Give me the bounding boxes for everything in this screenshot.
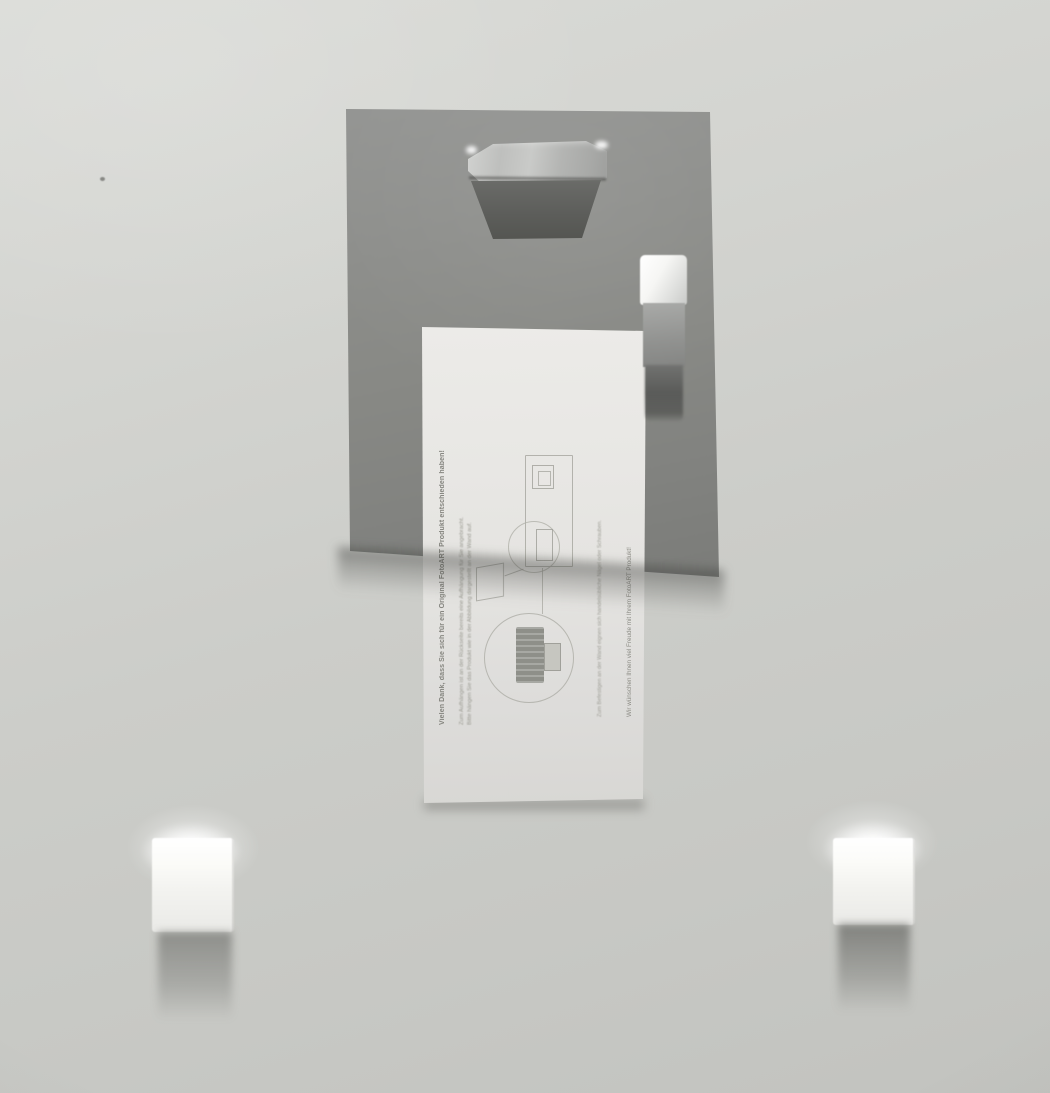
wall-speck [100,177,105,181]
hanger-glint-left [466,146,477,154]
foam-block-right-shadow [838,924,910,1012]
foam-block-left-face [152,838,234,932]
hanger-glint-right [595,141,608,149]
metal-clip [639,253,689,423]
foam-block-right-face [833,838,915,925]
diagram-hanger-icon-small [536,529,553,561]
diagram-hanger-tab-zoomed [544,643,561,671]
diagram-hanger-icon-detail [538,471,551,486]
foam-block-right [824,816,924,1031]
metal-clip-body [643,303,685,367]
card-instructions-line2: Bitte hängen Sie das Produkt wie in der … [467,517,475,725]
metal-clip-head [640,255,687,305]
foam-block-left [142,818,242,1033]
card-instructions: Zum Aufhängen ist an der Rückseite berei… [459,517,474,725]
card-instructions-line1: Zum Aufhängen ist an der Rückseite berei… [459,517,467,725]
metal-clip-tail [645,365,683,421]
foam-block-left-shadow [158,932,232,1020]
card-note: Zum Befestigen an der Wand eignen sich h… [597,520,603,717]
photo-scene: Vielen Dank, dass Sie sich für ein Origi… [0,0,1050,1093]
diagram-hanger-icon-zoomed [516,627,544,683]
